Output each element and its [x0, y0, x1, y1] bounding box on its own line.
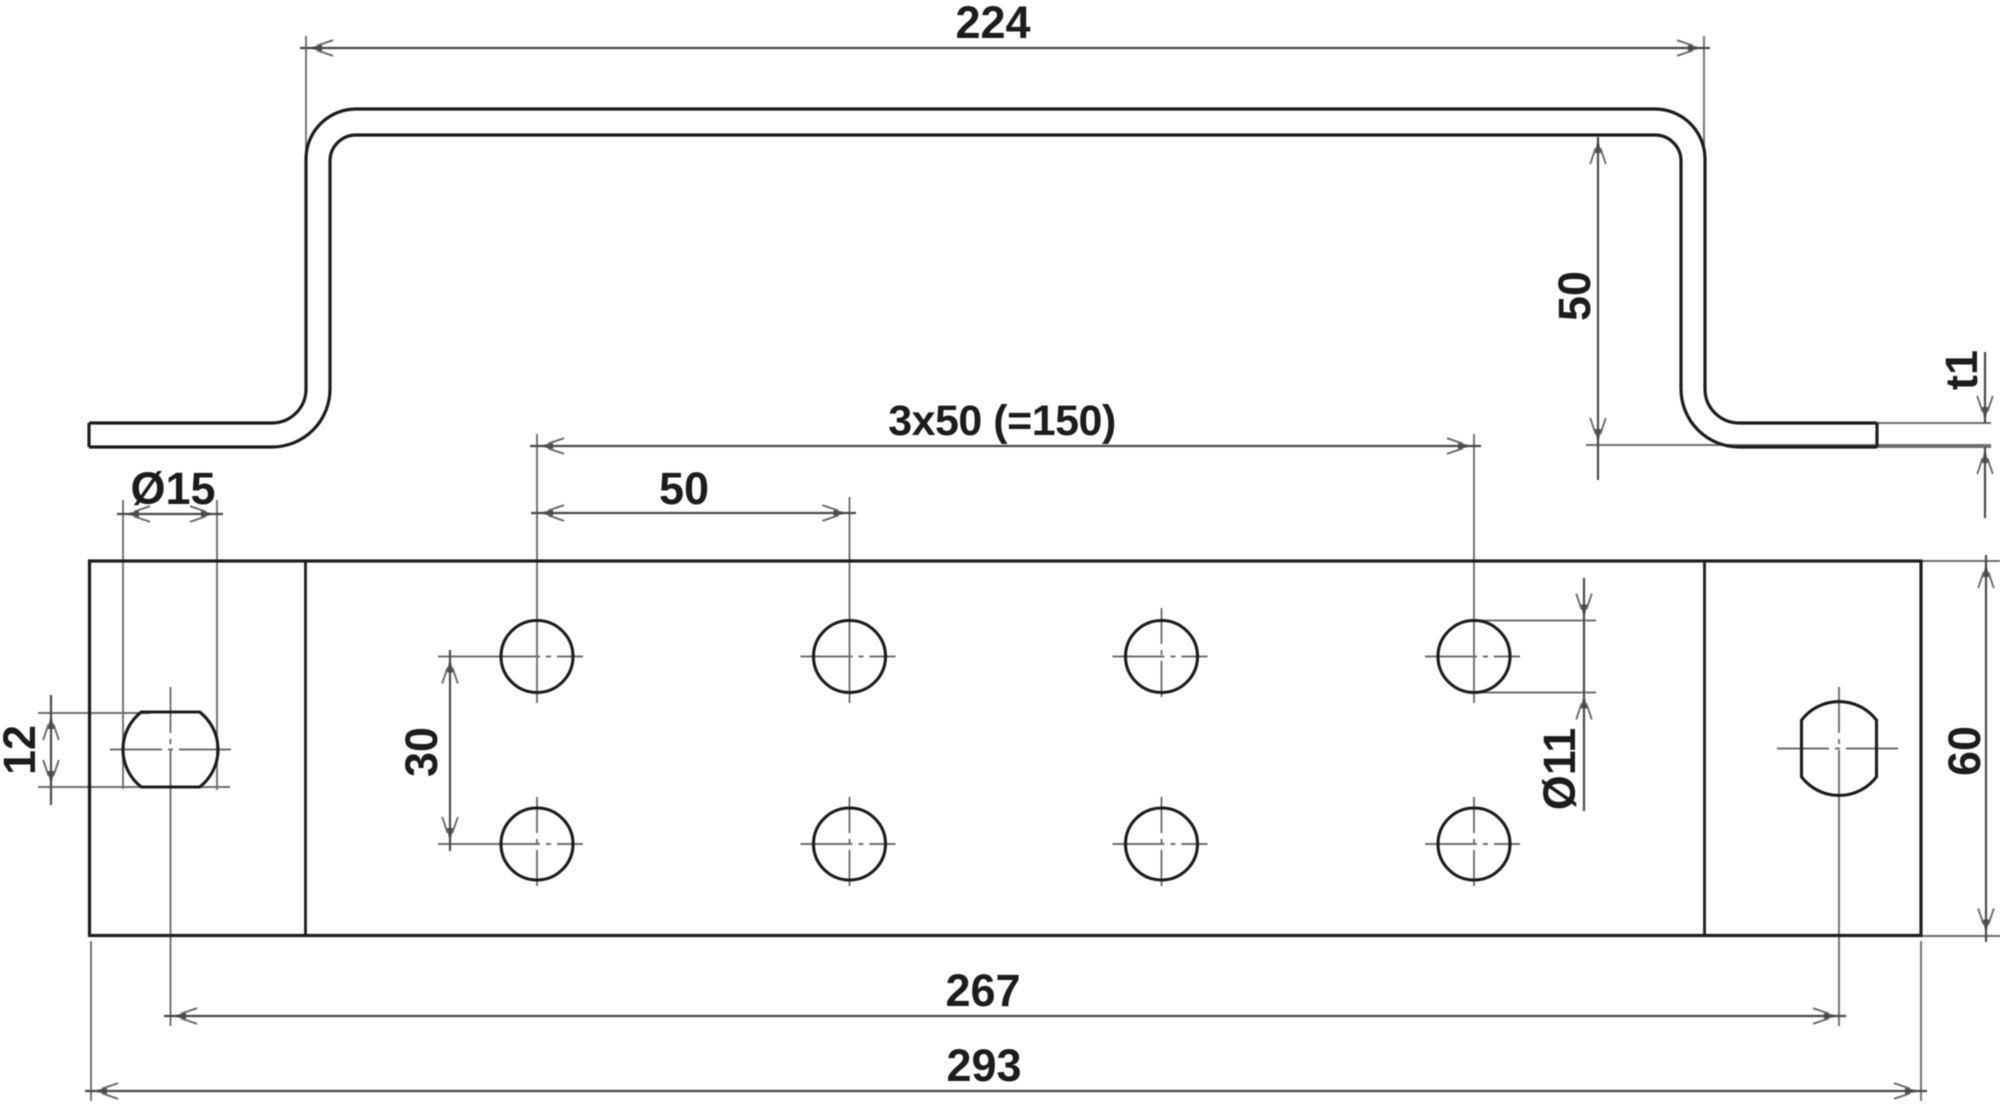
svg-text:60: 60	[1939, 726, 1990, 776]
svg-text:267: 267	[945, 965, 1020, 1016]
svg-text:30: 30	[396, 727, 447, 777]
svg-text:t1: t1	[1936, 350, 1987, 390]
svg-text:12: 12	[0, 725, 45, 775]
svg-text:50: 50	[1549, 271, 1600, 321]
svg-text:293: 293	[946, 1040, 1021, 1091]
svg-text:Ø15: Ø15	[130, 463, 215, 514]
svg-text:50: 50	[659, 463, 709, 514]
svg-text:224: 224	[955, 0, 1030, 48]
svg-text:3x50 (=150): 3x50 (=150)	[888, 397, 1116, 445]
svg-text:Ø11: Ø11	[1534, 728, 1585, 811]
